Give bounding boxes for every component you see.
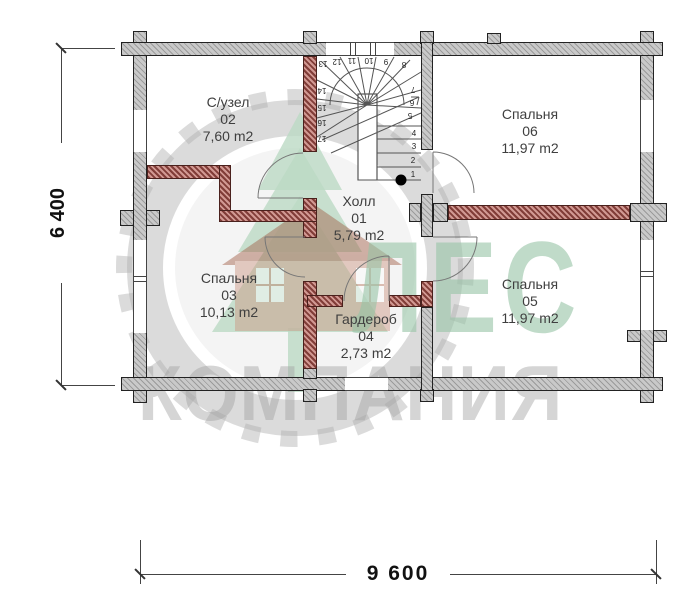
stair-step-number: 6 [409, 98, 414, 107]
stair-step-number: 4 [412, 129, 417, 138]
room-label-hall: Холл 01 5,79 m2 [284, 193, 434, 244]
room-name: С/узел [153, 94, 303, 111]
room-area: 10,13 m2 [154, 304, 304, 321]
room-number: 06 [455, 123, 605, 140]
room-name: Спальня [455, 276, 605, 293]
bedroom5-door [433, 237, 477, 281]
stair-step-number: 9 [383, 57, 388, 66]
stair-step-number: 8 [401, 60, 406, 69]
bedroom6-door [433, 152, 474, 193]
room-label-bedroom-05: Спальня 05 11,97 m2 [455, 276, 605, 327]
stair-step-number: 14 [317, 86, 326, 95]
stair-step-number: 2 [411, 156, 416, 165]
dimension-extension [656, 540, 657, 584]
room-area: 2,73 m2 [291, 345, 441, 362]
dimension-extension [61, 385, 115, 386]
wardrobe-door [344, 256, 389, 301]
room-name: Гардероб [291, 311, 441, 328]
room-label-wardrobe: Гардероб 04 2,73 m2 [291, 311, 441, 362]
dimension-label-vertical: 6 400 [45, 143, 71, 283]
stair-step-number: 5 [407, 111, 412, 120]
room-name: Спальня [154, 270, 304, 287]
bathroom-door [258, 153, 303, 198]
room-label-bedroom-03: Спальня 03 10,13 m2 [154, 270, 304, 321]
floor-plan-canvas: ЛЕС КОМПАНИЯ [0, 0, 700, 600]
stair-step-number: 7 [410, 85, 415, 94]
room-number: 04 [291, 328, 441, 345]
room-area: 11,97 m2 [455, 310, 605, 327]
room-name: Спальня [455, 106, 605, 123]
dimension-extension [61, 48, 115, 49]
stair-step-number: 16 [317, 118, 326, 127]
stair-step-number: 3 [412, 142, 417, 151]
room-area: 7,60 m2 [153, 128, 303, 145]
room-label-bathroom: С/узел 02 7,60 m2 [153, 94, 303, 145]
stair-step-number: 15 [317, 103, 326, 112]
stair-step-number: 12 [332, 57, 341, 66]
dimension-extension [140, 540, 141, 584]
stair-step-number: 10 [364, 56, 373, 65]
room-name: Холл [284, 193, 434, 210]
room-label-bedroom-06: Спальня 06 11,97 m2 [455, 106, 605, 157]
stair-start-dot [396, 175, 407, 186]
room-number: 01 [284, 210, 434, 227]
staircase [317, 57, 421, 186]
room-number: 02 [153, 111, 303, 128]
stair-step-number: 1 [411, 170, 416, 179]
stair-step-number: 17 [317, 134, 326, 143]
dimension-label-horizontal: 9 600 [346, 561, 450, 587]
room-area: 5,79 m2 [284, 227, 434, 244]
stair-step-number: 11 [347, 56, 356, 65]
room-area: 11,97 m2 [455, 140, 605, 157]
stair-step-number: 13 [318, 59, 327, 68]
room-number: 05 [455, 293, 605, 310]
room-number: 03 [154, 287, 304, 304]
